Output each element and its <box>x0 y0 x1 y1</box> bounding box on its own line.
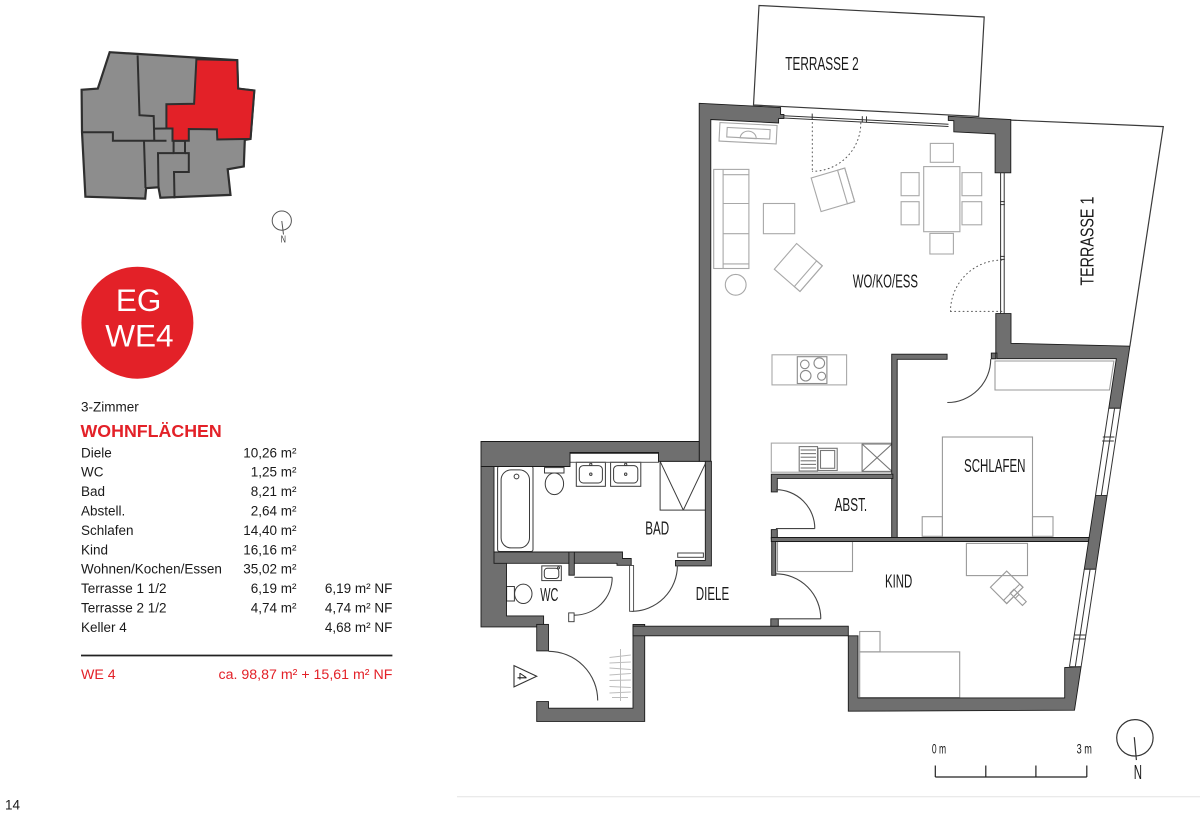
svg-text:Diele: Diele <box>81 445 112 460</box>
svg-text:6,19 m² NF: 6,19 m² NF <box>325 581 393 596</box>
svg-text:10,26 m²: 10,26 m² <box>243 445 297 460</box>
svg-text:N: N <box>1134 762 1142 784</box>
svg-text:WE4: WE4 <box>105 317 173 353</box>
svg-text:4,68 m² NF: 4,68 m² NF <box>325 620 393 635</box>
svg-text:WE 4: WE 4 <box>81 667 116 683</box>
svg-text:Terrasse 2 1/2: Terrasse 2 1/2 <box>81 601 167 616</box>
svg-text:Abstell.: Abstell. <box>81 504 125 519</box>
svg-text:SCHLAFEN: SCHLAFEN <box>964 456 1026 476</box>
svg-text:4,74 m² NF: 4,74 m² NF <box>325 601 393 616</box>
svg-text:Schlafen: Schlafen <box>81 523 134 538</box>
svg-text:Terrasse 1 1/2: Terrasse 1 1/2 <box>81 581 167 596</box>
svg-text:ca. 98,87 m² + 15,61 m² NF: ca. 98,87 m² + 15,61 m² NF <box>219 667 393 683</box>
svg-text:ABST.: ABST. <box>835 495 868 515</box>
svg-text:8,21 m²: 8,21 m² <box>251 484 297 499</box>
svg-text:TERRASSE 2: TERRASSE 2 <box>785 54 858 74</box>
svg-text:4,74 m²: 4,74 m² <box>251 601 297 616</box>
svg-text:6,19 m²: 6,19 m² <box>251 581 297 596</box>
svg-text:14,40 m²: 14,40 m² <box>243 523 297 538</box>
svg-text:WO/KO/ESS: WO/KO/ESS <box>853 271 918 291</box>
svg-text:3-Zimmer: 3-Zimmer <box>81 400 139 415</box>
svg-text:14: 14 <box>5 798 21 813</box>
svg-text:WC: WC <box>81 465 104 480</box>
svg-text:4: 4 <box>515 673 530 680</box>
svg-text:Bad: Bad <box>81 484 105 499</box>
svg-text:WOHNFLÄCHEN: WOHNFLÄCHEN <box>81 421 222 441</box>
svg-text:EG: EG <box>116 282 162 318</box>
svg-text:Wohnen/Kochen/Essen: Wohnen/Kochen/Essen <box>81 562 222 577</box>
svg-text:DIELE: DIELE <box>696 584 729 604</box>
svg-text:16,16 m²: 16,16 m² <box>243 542 297 557</box>
svg-text:N: N <box>281 235 286 246</box>
svg-text:35,02 m²: 35,02 m² <box>243 562 297 577</box>
svg-text:WC: WC <box>540 585 558 605</box>
svg-text:0 m: 0 m <box>932 741 946 757</box>
svg-text:Kind: Kind <box>81 542 108 557</box>
svg-text:BAD: BAD <box>645 518 669 538</box>
svg-text:3 m: 3 m <box>1077 741 1092 757</box>
svg-text:2,64 m²: 2,64 m² <box>251 504 297 519</box>
svg-text:KIND: KIND <box>885 572 912 592</box>
svg-text:TERRASSE 1: TERRASSE 1 <box>1078 197 1098 286</box>
svg-text:1,25 m²: 1,25 m² <box>251 465 297 480</box>
svg-text:Keller 4: Keller 4 <box>81 620 127 635</box>
